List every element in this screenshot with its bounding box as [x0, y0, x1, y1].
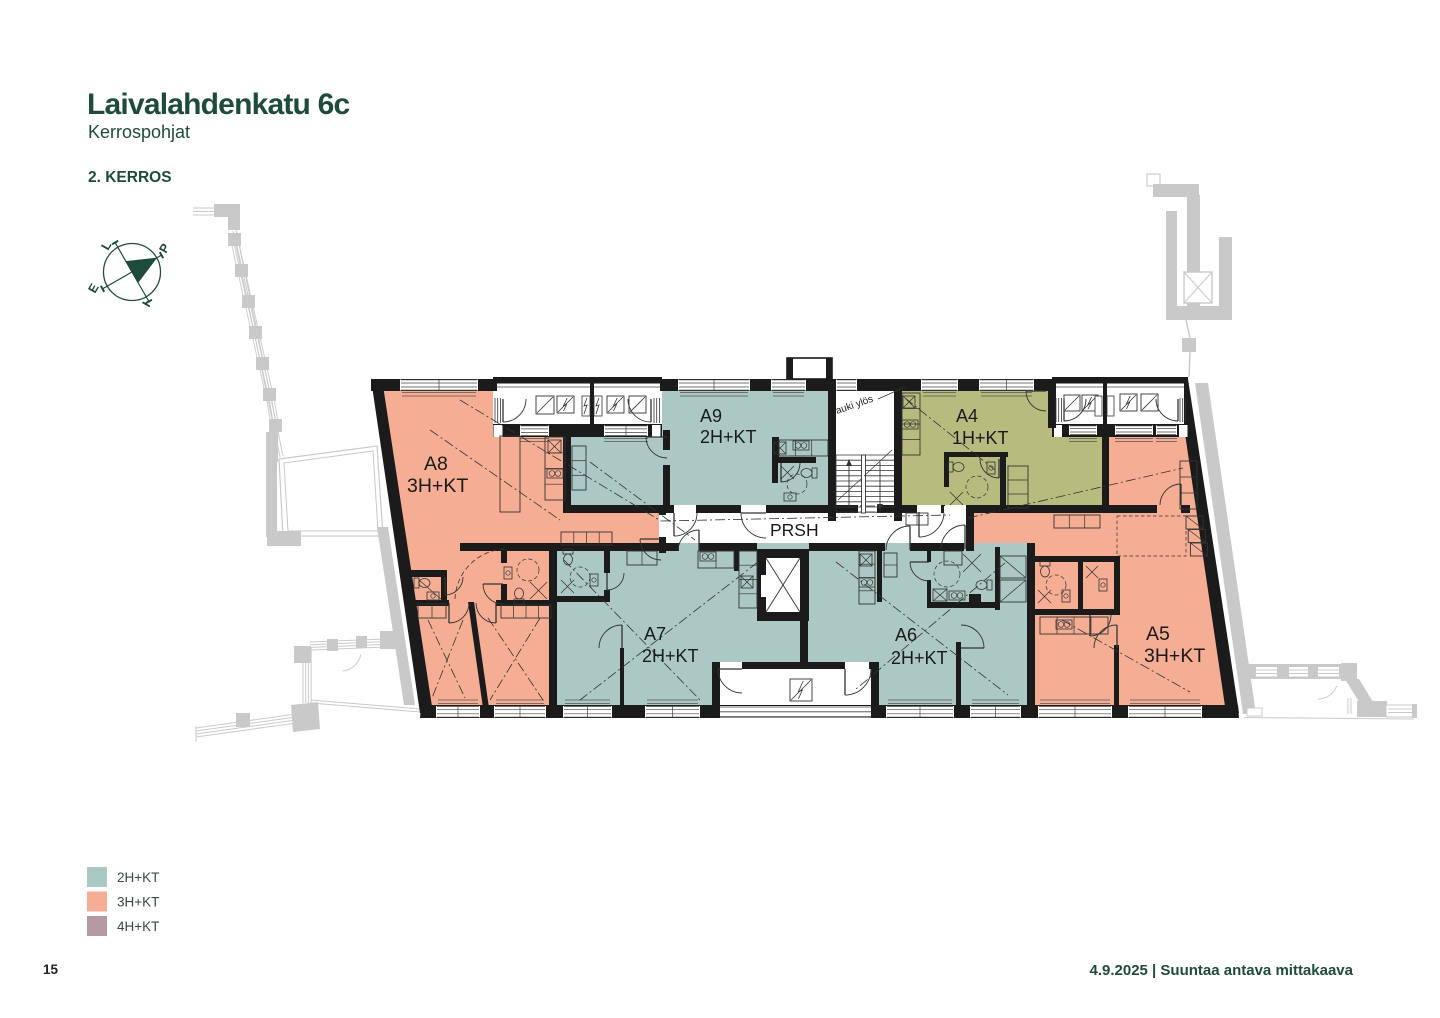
svg-text:15: 15 — [43, 962, 59, 977]
svg-text:PRSH: PRSH — [770, 520, 819, 540]
svg-text:Kerrospohjat: Kerrospohjat — [88, 122, 190, 142]
svg-text:3H+KT: 3H+KT — [1144, 645, 1205, 667]
svg-text:2H+KT: 2H+KT — [117, 870, 159, 885]
svg-text:2H+KT: 2H+KT — [700, 427, 757, 447]
svg-text:3H+KT: 3H+KT — [117, 895, 159, 910]
svg-text:3H+KT: 3H+KT — [407, 475, 468, 497]
svg-text:1H+KT: 1H+KT — [952, 428, 1009, 448]
svg-text:A8: A8 — [424, 453, 448, 475]
svg-text:Laivalahdenkatu 6c: Laivalahdenkatu 6c — [87, 88, 349, 121]
svg-text:A7: A7 — [644, 624, 666, 644]
svg-text:4H+KT: 4H+KT — [117, 919, 159, 934]
svg-text:A5: A5 — [1146, 623, 1170, 645]
svg-text:A9: A9 — [700, 406, 722, 426]
svg-text:2H+KT: 2H+KT — [642, 646, 699, 666]
svg-text:2H+KT: 2H+KT — [891, 648, 948, 668]
svg-text:4.9.2025 | Suuntaa antava mitt: 4.9.2025 | Suuntaa antava mittakaava — [1089, 962, 1353, 979]
svg-text:A4: A4 — [956, 406, 978, 426]
svg-text:A6: A6 — [895, 625, 917, 645]
svg-text:2. KERROS: 2. KERROS — [88, 169, 172, 186]
